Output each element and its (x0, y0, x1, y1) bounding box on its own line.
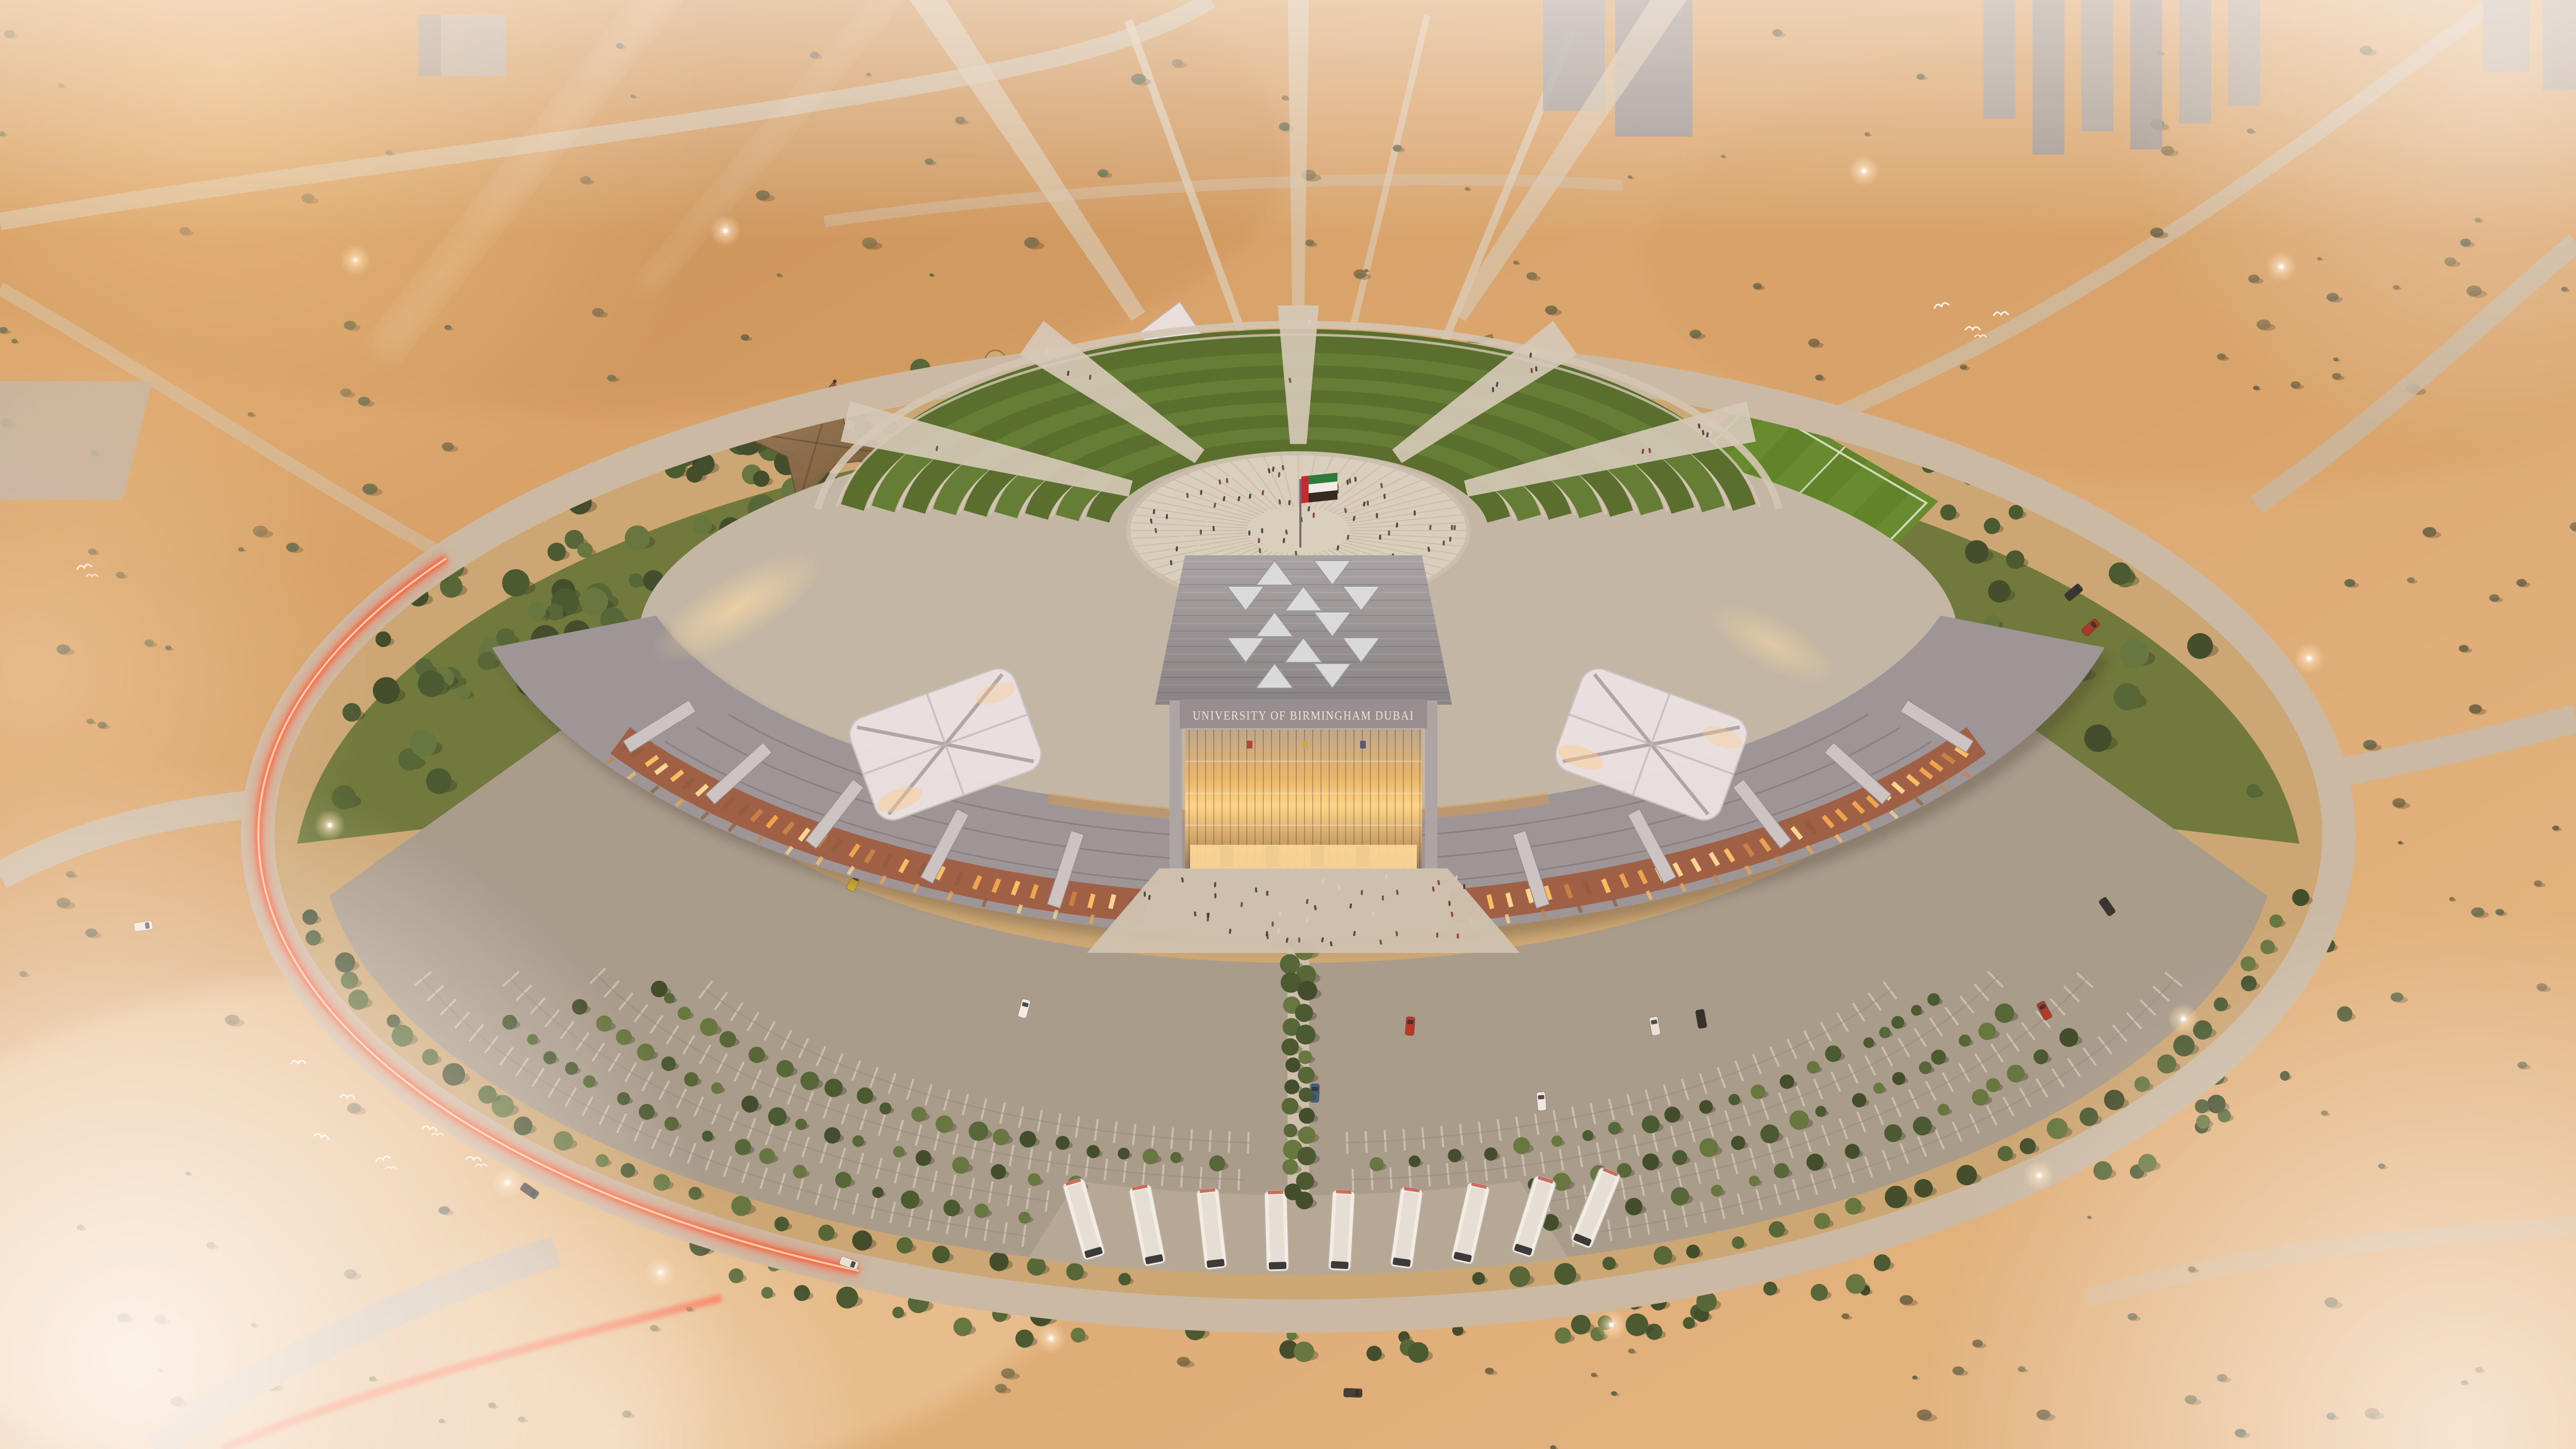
atmospheric-haze (0, 0, 2576, 1449)
color-grade (0, 0, 2576, 1449)
aerial-rendering: UNIVERSITY OF BIRMINGHAM DUBAI (0, 0, 2576, 1449)
